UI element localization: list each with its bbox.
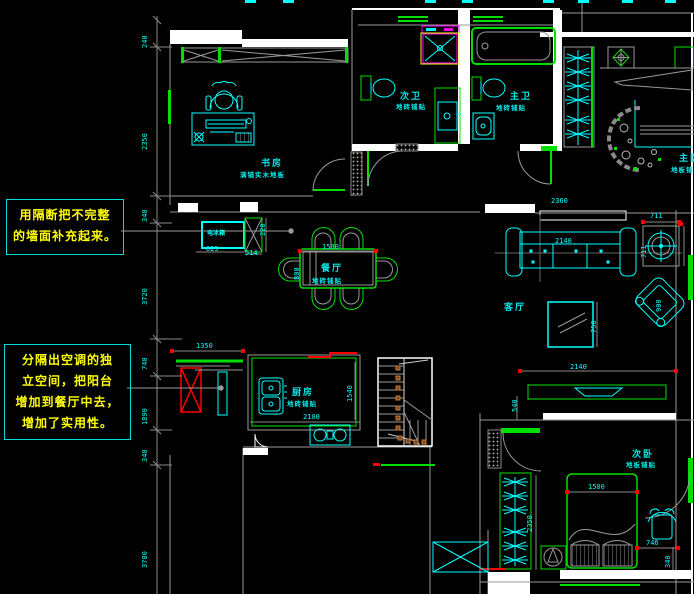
annotation-note-2: 分隔出空调的独 立空间，把阳台 增加到餐厅中去， 增加了实用性。 [4,344,131,440]
dim-kitchen-width: 2100 [303,413,320,421]
dim-niche-width: 2360 [551,197,568,205]
dim-gap-depth: 340 [664,555,672,568]
dim-fridge-width: 829 [206,245,219,253]
staircase-icon [373,358,435,466]
bed2-door-icon [501,428,541,471]
cad-floor-plan-canvas: 用隔断把不完整 的墙面补充起来。 分隔出空调的独 立空间，把阳台 增加到餐厅中去… [0,0,694,594]
room-finish-bed2: 地板铺贴 [626,459,656,469]
dim-cabinet-width: 514 [245,249,258,257]
room-label-bath1: 主卫 [510,89,532,102]
dim-left-0: 240 [141,35,149,48]
room-label-kitchen: 厨房 [292,385,314,398]
note-line: 立空间，把阳台 [8,371,127,392]
room-label-bed1: 主卧 [679,151,694,164]
compass-ornament-icon [608,47,634,68]
dim-left-2: 340 [141,209,149,222]
dim-left-3: 3720 [141,288,149,305]
study-door-icon [313,159,345,191]
tv-cabinet-icon [528,385,666,399]
kitchen-fixtures [176,353,357,445]
dim-fan-width: 711 [650,212,663,220]
dim-table-depth: 800 [293,267,301,280]
note-line: 增加到餐厅中去， [8,392,127,413]
dim-bed-width: 1500 [588,483,605,491]
dim-balcony-width: 1350 [196,342,213,350]
toilet-icon [361,76,395,100]
balcony-door-arc-icon [645,473,690,518]
vanity-sink-icon [435,88,461,143]
dim-left-4: 740 [141,357,149,370]
column-icon [181,368,201,412]
office-chair-icon [206,81,242,110]
room-label-living: 客厅 [504,300,526,313]
dim-cabinet-depth: 220 [259,223,267,236]
toilet-icon [472,77,505,100]
dim-table-width: 1500 [322,243,339,251]
note-line: 的墙面补充起来。 [10,226,120,247]
note-line: 用隔断把不完整 [10,205,120,226]
dim-door-width: 540 [511,399,519,412]
dim-bed-gap: 746 [646,539,659,547]
desk-icon [192,113,254,145]
ceiling-fan-icon [643,226,679,266]
windows [398,17,503,21]
kitchen-door-icon [218,372,268,447]
nightstand-lamp-icon [541,546,566,569]
coffee-table-icon [548,302,593,347]
dim-armchair-depth: 900 [655,299,663,312]
note-line: 分隔出空调的独 [8,350,127,371]
room-label-dining: 餐厅 [321,261,343,274]
kitchen-sink-icon [259,378,287,414]
dim-left-1: 2350 [141,133,149,150]
fridge-label: 电冰箱 [207,228,225,237]
bath1-door-icon [518,151,551,184]
room-finish-study: 满铺实木地板 [240,169,285,179]
master-door-icon [541,146,557,151]
room-finish-kitchen: 地砖铺贴 [287,398,317,408]
study-furniture [192,81,254,145]
note-line: 增加了实用性。 [8,413,127,434]
bath1-fixtures [472,28,555,139]
dim-left-5: 1890 [141,408,149,425]
floor-plan-drawing [0,0,694,594]
dim-sofa-width: 2140 [555,237,572,245]
annotation-note-1: 用隔断把不完整 的墙面补充起来。 [6,199,124,255]
top-dim-fragments [245,0,676,3]
sofa-icon [506,228,636,276]
bath2-door-icon [368,151,403,186]
master-bedroom-decor [564,47,694,170]
dim-fan-height: 711 [640,245,648,258]
dim-left-7: 3780 [141,551,149,568]
dim-coffee-depth: 750 [590,320,598,333]
dim-kitchen-depth: 1540 [346,385,354,402]
room-label-study: 书房 [261,156,283,169]
dim-tv-width: 2140 [570,363,587,371]
dim-wardrobe-height: 2350 [526,515,534,532]
shower-icon [421,33,459,64]
room-finish-dining: 地砖铺贴 [312,275,342,285]
room-finish-bath1: 地砖铺贴 [496,102,526,112]
cooktop-icon [310,425,350,445]
walls [168,0,694,594]
sink-icon [473,113,494,139]
doors [218,146,690,518]
bed2-furniture [480,473,676,569]
dim-left-6: 340 [141,449,149,462]
room-finish-bed1: 地板铺贴 [671,164,694,174]
bedroom-chair-icon [648,509,676,539]
room-finish-bath2: 地砖铺贴 [396,101,426,111]
bath2-fixtures [361,26,461,143]
wardrobe-icon [564,47,594,147]
